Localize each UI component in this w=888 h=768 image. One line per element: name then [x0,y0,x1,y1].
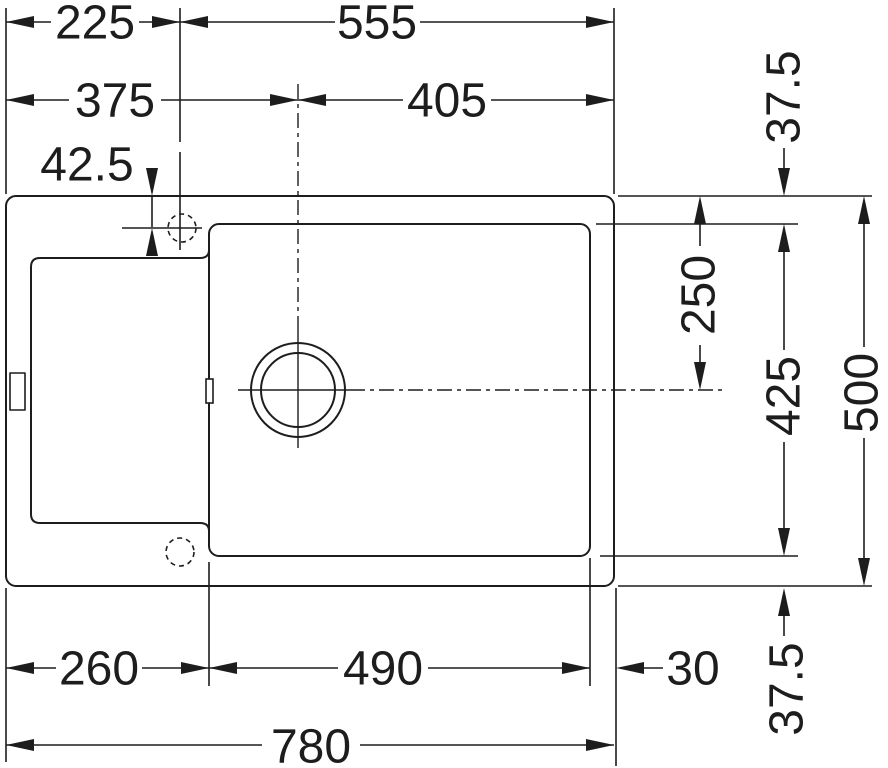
dim-rim-right: 30 [616,643,720,696]
dim-label-42-5: 42.5 [40,139,133,192]
dim-arrow-down [146,168,158,196]
dim-arrow-down [778,168,790,196]
dim-label-555: 555 [337,0,417,50]
dim-arrow-right [270,94,298,106]
dim-arrow-up [778,224,790,252]
dim-arrow-right [562,662,590,674]
dim-left-section: 260 [6,643,209,696]
dim-overall-width: 780 [6,721,614,768]
dim-label-490: 490 [343,643,423,696]
dim-arrow-down [694,362,706,390]
dim-arrow-down [858,558,870,586]
sink-dimension-drawing: 225 555 375 405 42.5 37.5 [0,0,888,768]
dim-arrow-left [6,16,34,28]
dim-rim-top: 37.5 [758,50,811,252]
dim-label-405: 405 [407,75,487,128]
dim-label-260: 260 [59,643,139,696]
dim-drain-from-top: 250 [673,196,726,390]
dim-overall-depth: 500 [836,196,888,586]
aux-faucet-hole-circle [166,538,194,566]
drainboard-outline [31,250,209,531]
dim-arrow-up [146,228,158,256]
dim-rim-bottom: 37.5 [761,588,814,736]
dim-label-250: 250 [673,255,726,335]
dim-label-425: 425 [758,356,811,436]
dim-drain-from-left: 375 [6,75,298,128]
bowl-left-slot [206,379,213,403]
left-rim-overflow-rect [10,373,25,410]
dim-label-375: 375 [75,75,155,128]
dim-arrow-left [6,94,34,106]
dim-arrow-left [209,662,237,674]
dim-label-225: 225 [55,0,135,50]
dim-arrow-up [778,588,790,616]
dim-bowl-depth: 425 [758,250,811,556]
dim-faucet-to-right: 555 [180,0,614,50]
dim-arrow-left [298,94,326,106]
dim-arrow-right [586,739,614,751]
dim-label-500: 500 [836,353,888,433]
dim-arrow-up [858,196,870,224]
dim-arrow-right [586,94,614,106]
dim-arrow-left [6,739,34,751]
dim-bowl-width: 490 [209,643,590,696]
sink-outer-outline [6,196,614,586]
sink-body [6,196,614,586]
dim-label-30: 30 [666,643,719,696]
dim-arrow-left [6,662,34,674]
dim-label-37-5-bottom: 37.5 [761,642,814,735]
dim-arrow-left [616,662,644,674]
dim-arrow-right [586,16,614,28]
dim-label-780: 780 [271,721,351,768]
drawing-svg: 225 555 375 405 42.5 37.5 [0,0,888,768]
dim-drain-to-right: 405 [298,75,614,128]
dim-arrow-left [180,16,208,28]
dim-arrow-right [181,662,209,674]
dim-faucet-from-left: 225 [6,0,180,50]
dim-arrow-up [694,196,706,224]
dim-label-37-5-top: 37.5 [758,50,811,143]
dim-arrow-right [152,16,180,28]
dim-faucet-from-edge: 42.5 [40,139,158,257]
dim-arrow-down [778,528,790,556]
